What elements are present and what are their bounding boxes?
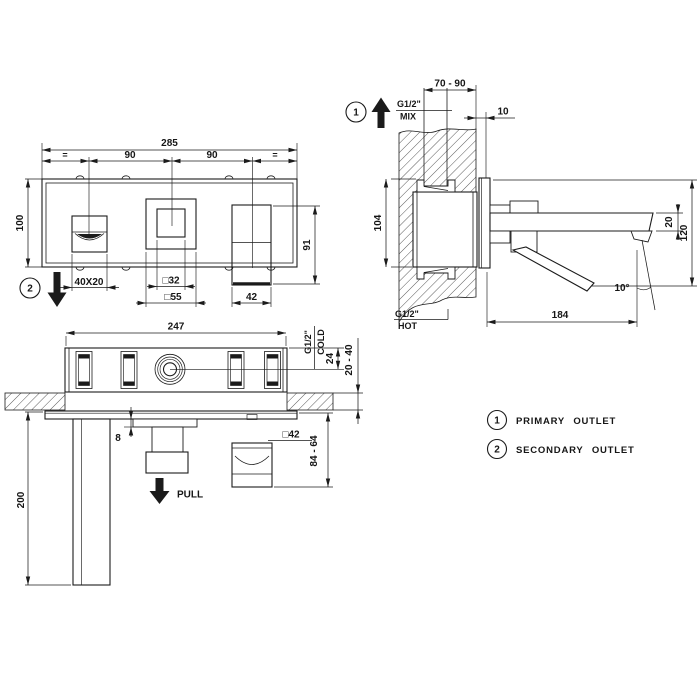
dim-label-84-64: 84 - 64	[309, 435, 320, 467]
handle-lever-side	[513, 247, 594, 291]
mix-thread-label: G1/2"	[397, 99, 421, 109]
dim-label-sq32: □32	[162, 276, 180, 287]
cold-thread-label: G1/2"	[303, 330, 313, 354]
diverter-front	[146, 199, 196, 249]
up-arrow-icon	[372, 98, 391, 129]
cold-name-label: COLD	[316, 329, 326, 355]
legend: 1 PRIMARY OUTLET 2 SECONDARY OUTLET	[488, 411, 635, 459]
dim-spout-projection: 200	[16, 412, 71, 585]
dim-label-40x20: 40X20	[75, 277, 104, 288]
dim-handle-square: □42	[268, 430, 312, 441]
dim-label-100: 100	[15, 214, 26, 231]
dim-label-10deg: 10°	[614, 283, 629, 294]
handle-front	[232, 205, 271, 285]
dim-label-285: 285	[161, 138, 178, 149]
dim-label-42: 42	[246, 292, 258, 303]
diverter-plan	[133, 419, 197, 473]
legend-label-primary: PRIMARY OUTLET	[516, 416, 616, 427]
dim-label-104: 104	[373, 214, 384, 231]
spout-side	[490, 201, 653, 252]
dim-wall-thickness: 20 - 40	[344, 338, 360, 424]
wall-section-plan	[5, 393, 363, 410]
pull-label: PULL	[177, 490, 203, 501]
pull-down-arrow-icon	[150, 478, 170, 504]
side-view: 10° 70 - 90 G1/2" MIX 10	[346, 79, 697, 332]
dim-label-90-left: 90	[124, 150, 136, 161]
dim-label-200: 200	[16, 491, 27, 508]
front-view: 285 = 90 90 = 100	[15, 138, 320, 307]
dim-label-10: 10	[497, 107, 509, 118]
spray-angle: 10°	[614, 240, 655, 327]
mixer-body-front	[42, 176, 297, 270]
aerator-side	[631, 231, 652, 242]
built-in-body-plan	[65, 348, 287, 392]
dim-label-equal-left: =	[62, 150, 67, 160]
spout-plan	[73, 419, 110, 585]
built-in-body-side	[413, 180, 477, 279]
wall-plate-side	[479, 178, 490, 268]
dim-handle-projection: 84 - 64	[274, 413, 333, 487]
dim-label-184: 184	[552, 310, 569, 321]
mix-name-label: MIX	[400, 112, 416, 122]
dim-label-20: 20	[664, 216, 675, 228]
dim-label-247: 247	[168, 322, 185, 333]
legend-label-secondary: SECONDARY OUTLET	[516, 445, 635, 456]
dim-handle-width: 42	[232, 287, 271, 307]
spout-front	[72, 216, 107, 252]
primary-outlet-marker: 1	[346, 98, 391, 129]
legend-num-1: 1	[494, 416, 500, 427]
dim-spout-outlet: 40X20	[60, 254, 119, 291]
hot-name-label: HOT	[398, 321, 418, 331]
hot-connection-label: G1/2" HOT	[394, 309, 448, 331]
dim-recess-depth: 70 - 90	[424, 79, 476, 131]
pull-indicator: PULL	[150, 478, 204, 504]
wall-plate-plan	[45, 411, 297, 419]
dim-label-70-90: 70 - 90	[434, 79, 466, 90]
dim-label-24: 24	[325, 353, 336, 365]
handle-plan	[232, 415, 272, 488]
dim-spacing-row: = 90 90 =	[42, 150, 297, 163]
hot-thread-label: G1/2"	[395, 309, 419, 319]
dim-label-equal-right: =	[272, 150, 277, 160]
legend-num-2: 2	[494, 445, 500, 456]
technical-drawing-page: 285 = 90 90 = 100	[0, 0, 700, 700]
dim-label-sq55: □55	[164, 292, 182, 303]
marker-1-number: 1	[353, 108, 359, 119]
dim-body-height: 100	[15, 179, 42, 267]
secondary-outlet-marker: 2	[20, 272, 67, 307]
dim-label-91: 91	[302, 239, 313, 251]
marker-2-number: 2	[27, 284, 33, 295]
dim-label-90-right: 90	[206, 150, 218, 161]
legend-item-primary: 1 PRIMARY OUTLET	[488, 411, 617, 430]
dim-label-8: 8	[115, 433, 121, 444]
dim-total-width: 285	[42, 138, 297, 179]
plan-view: 247 G1/2" COLD 24 20 - 40	[5, 322, 363, 586]
dim-spout-reach: 184	[487, 272, 637, 327]
dim-diverter-inner: □32	[147, 240, 195, 290]
dim-body-width-plan: 247	[66, 322, 286, 347]
dim-label-20-40: 20 - 40	[344, 344, 355, 376]
legend-item-secondary: 2 SECONDARY OUTLET	[488, 440, 635, 459]
dim-label-sq42: □42	[282, 430, 300, 441]
drawing-canvas: 285 = 90 90 = 100	[0, 0, 700, 700]
dim-label-120: 120	[679, 224, 690, 241]
